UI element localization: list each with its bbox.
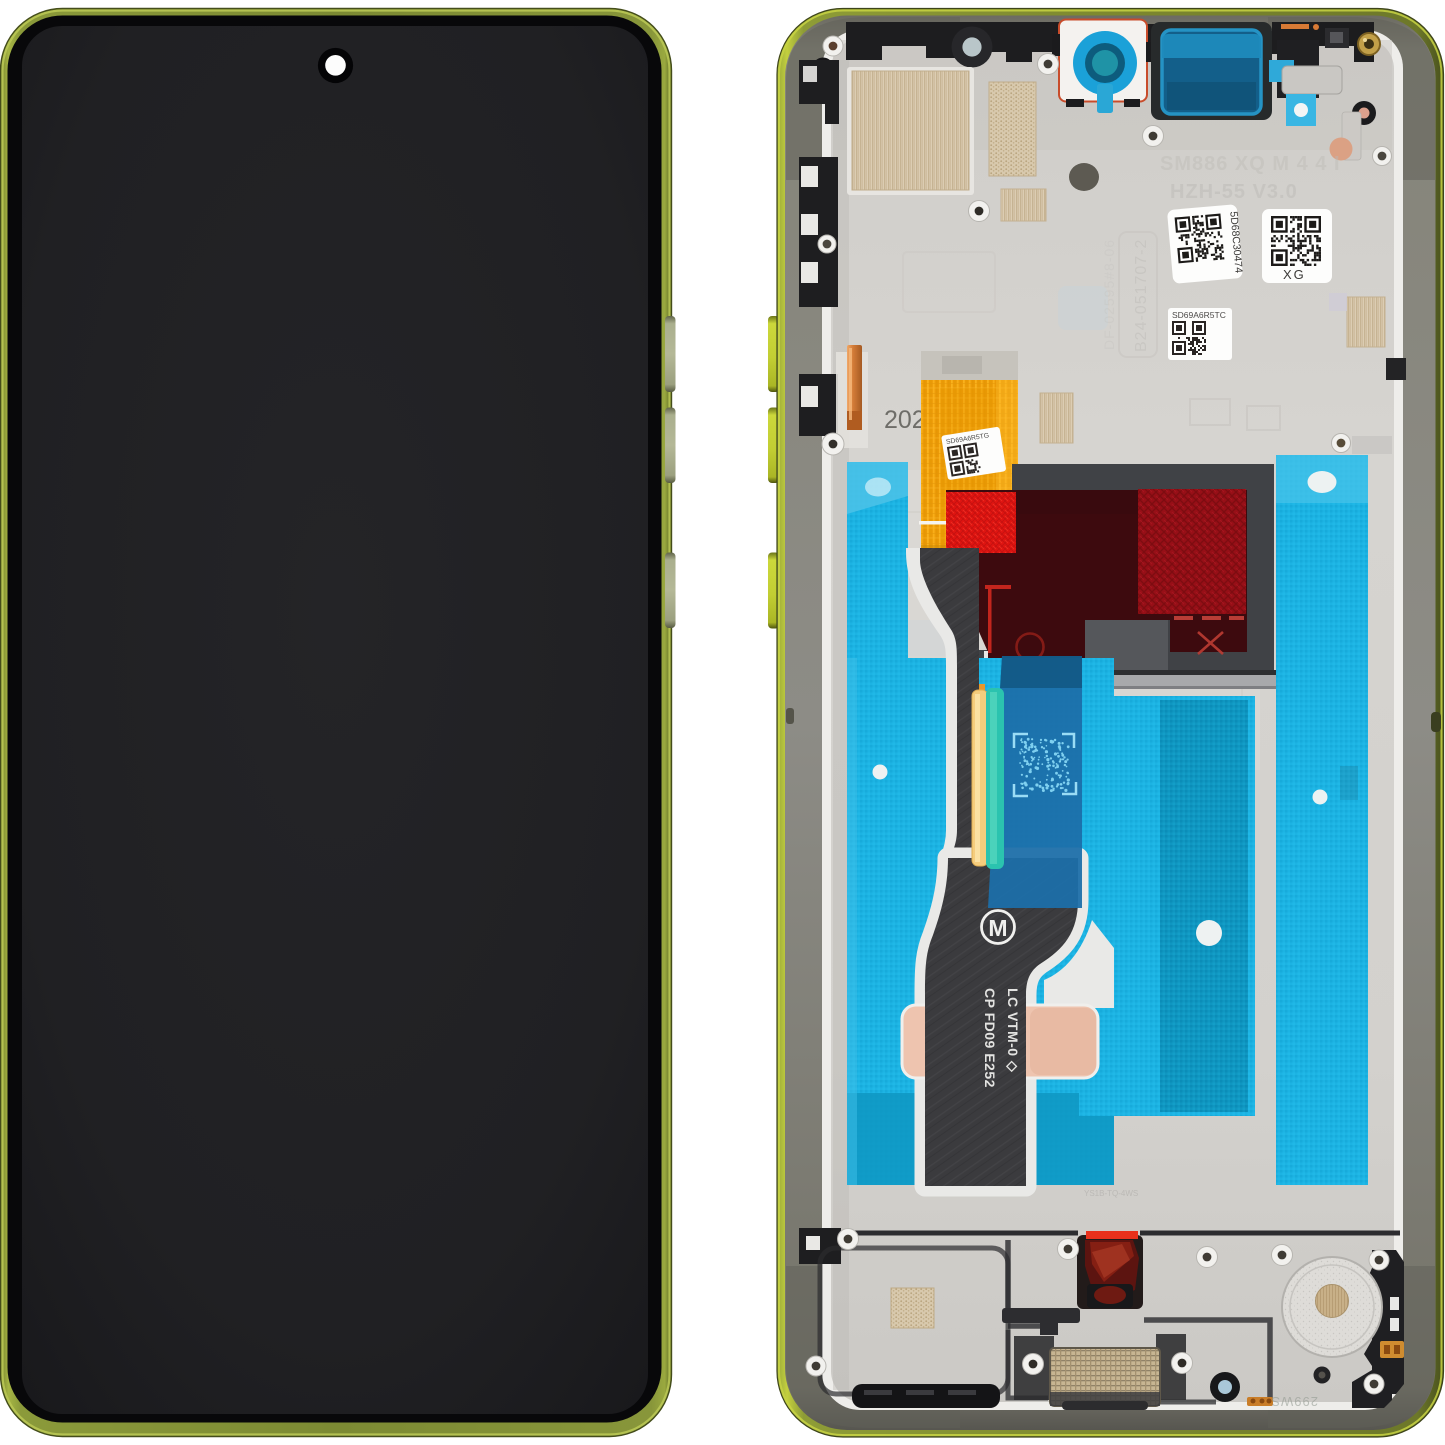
svg-text:LC VTM-0 ◇: LC VTM-0 ◇ xyxy=(1005,988,1021,1073)
svg-text:XG: XG xyxy=(1283,267,1306,282)
svg-text:B24-051707-2: B24-051707-2 xyxy=(1133,239,1150,352)
svg-text:M: M xyxy=(988,915,1007,941)
svg-text:SM886 XQ M 4 4 I: SM886 XQ M 4 4 I xyxy=(1160,153,1341,175)
svg-text:DF-02595#8-06: DF-02595#8-06 xyxy=(1101,239,1117,350)
svg-text:SD69A6R5TC: SD69A6R5TC xyxy=(1172,310,1226,320)
svg-text:299WS: 299WS xyxy=(1270,1394,1318,1409)
svg-text:HZH-55 V3.0: HZH-55 V3.0 xyxy=(1170,181,1298,203)
svg-text:CP FD09 E252: CP FD09 E252 xyxy=(982,988,998,1088)
svg-text:YS1B-TQ-4WS: YS1B-TQ-4WS xyxy=(1084,1189,1138,1198)
